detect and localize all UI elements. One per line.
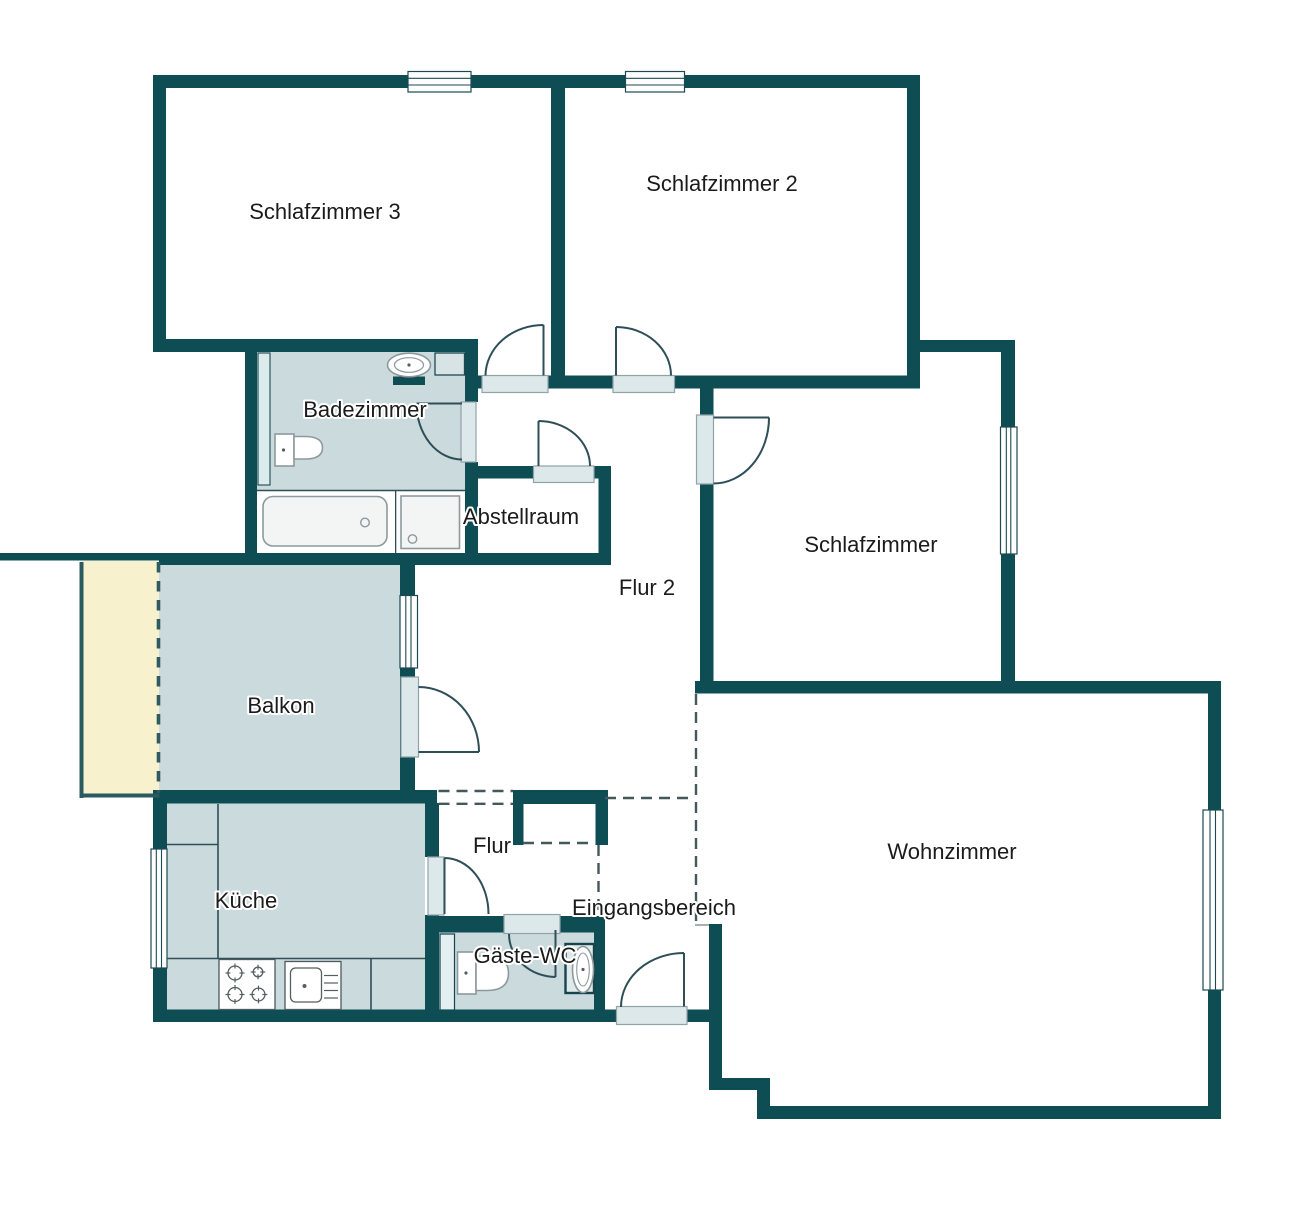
svg-text:Abstellraum: Abstellraum (463, 504, 579, 529)
svg-text:Gäste-WC: Gäste-WC (474, 943, 577, 968)
svg-text:Eingangsbereich: Eingangsbereich (572, 895, 736, 920)
svg-text:Wohnzimmer: Wohnzimmer (887, 839, 1016, 864)
svg-text:Schlafzimmer 2: Schlafzimmer 2 (646, 171, 798, 196)
svg-text:Flur: Flur (473, 833, 511, 858)
svg-text:Badezimmer: Badezimmer (303, 397, 426, 422)
svg-text:Balkon: Balkon (247, 693, 314, 718)
svg-text:Schlafzimmer 3: Schlafzimmer 3 (249, 199, 401, 224)
svg-text:Küche: Küche (215, 888, 277, 913)
svg-text:Flur 2: Flur 2 (619, 575, 675, 600)
svg-text:Schlafzimmer: Schlafzimmer (804, 532, 937, 557)
